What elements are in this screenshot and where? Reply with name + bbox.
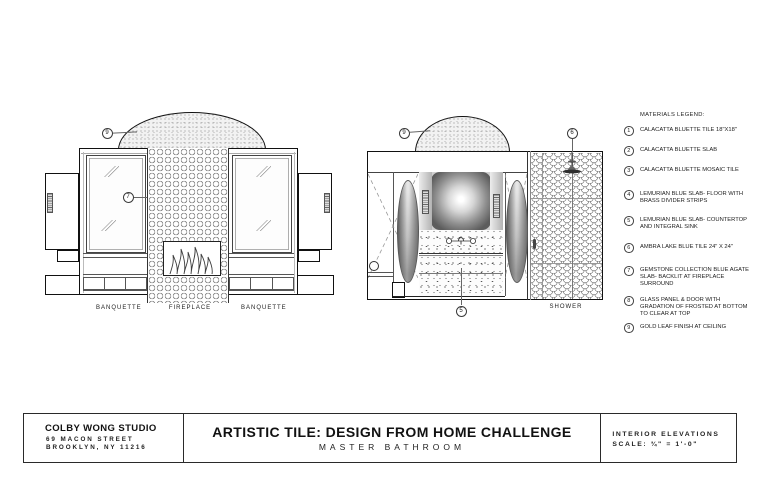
callout-7-fireplace-surround: 7	[123, 192, 134, 203]
fireplace-opening	[163, 241, 221, 276]
materials-legend: MATERIALS LEGEND: 1 CALACATTA BLUETTE TI…	[0, 0, 760, 360]
glass-column-left	[397, 180, 419, 283]
mosaic-fireplace-column	[147, 148, 229, 303]
callout-9-ceiling: 9	[399, 128, 410, 139]
leader-line	[461, 268, 462, 305]
studio-name: COLBY WONG STUDIO	[45, 423, 157, 434]
leader-line	[134, 197, 147, 198]
vanity-sconce-left	[422, 190, 429, 214]
callout-5-vanity: 5	[456, 306, 467, 317]
floor-line	[393, 296, 505, 297]
legend-number-badge: 2	[624, 146, 634, 156]
legend-item-7: 7 GEMSTONE COLLECTION BLUE AGATESLAB- BA…	[624, 267, 758, 288]
title-block: COLBY WONG STUDIO 69 MACON STREET BROOKL…	[23, 413, 737, 463]
vanity-sconce-right	[493, 194, 500, 218]
legend-number-badge: 9	[624, 323, 634, 333]
legend-number-badge: 6	[624, 243, 634, 253]
legend-number-badge: 3	[624, 166, 634, 176]
studio-address-line2: BROOKLYN, NY 11216	[46, 444, 147, 451]
counter-edge-line	[419, 255, 503, 256]
callout-9-ceiling: 9	[102, 128, 113, 139]
drawing-sheet: 9 7 BANQUETTE FIREPLACE BANQUETTE	[0, 0, 760, 492]
legend-title: MATERIALS LEGEND:	[640, 112, 705, 118]
legend-item-9: 9 GOLD LEAF FINISH AT CEILING	[624, 324, 758, 331]
legend-item-3: 3 CALACATTA BLUETTE MOSAIC TILE	[624, 167, 758, 174]
sheet-title: ARTISTIC TILE: DESIGN FROM HOME CHALLENG…	[184, 424, 601, 440]
legend-item-5: 5 LEMURIAN BLUE SLAB- COUNTERTOPAND INTE…	[624, 217, 758, 231]
sheet-subtitle: MASTER BATHROOM	[184, 442, 601, 452]
legend-number-badge: 4	[624, 190, 634, 200]
sheet-type: INTERIOR ELEVATIONS	[612, 431, 719, 438]
flames-icon	[164, 242, 220, 276]
legend-number-badge: 5	[624, 216, 634, 226]
legend-item-4: 4 LEMURIAN BLUE SLAB- FLOOR WITHBRASS DI…	[624, 191, 758, 205]
leader-line	[572, 139, 573, 152]
shower-head-icon	[560, 152, 584, 186]
door-pull-icon	[369, 261, 379, 271]
legend-number-badge: 1	[624, 126, 634, 136]
title-block-studio-cell: COLBY WONG STUDIO 69 MACON STREET BROOKL…	[24, 414, 184, 462]
legend-number-badge: 8	[624, 296, 634, 306]
studio-address-line1: 69 MACON STREET	[46, 436, 134, 443]
legend-item-6: 6 AMBRA LAKE BLUE TILE 24" X 24"	[624, 244, 758, 251]
backlit-mirror	[419, 172, 503, 230]
counter-edge-line	[419, 253, 503, 254]
legend-number-badge: 7	[624, 266, 634, 276]
legend-item-8: 8 GLASS PANEL & DOOR WITHGRADATION OF FR…	[624, 297, 758, 318]
faucet-icon	[444, 233, 478, 249]
glass-column-right	[506, 180, 528, 283]
title-block-title-cell: ARTISTIC TILE: DESIGN FROM HOME CHALLENG…	[184, 414, 602, 462]
legend-item-1: 1 CALACATTA BLUETTE TILE 18"X18"	[624, 127, 758, 134]
backlit-mirror-glow	[431, 172, 491, 230]
sheet-scale: SCALE: ¾" = 1'-0"	[612, 441, 698, 448]
callout-6-shower-tile: 6	[567, 128, 578, 139]
legend-item-2: 2 CALACATTA BLUETTE SLAB	[624, 147, 758, 154]
title-block-info-cell: INTERIOR ELEVATIONS SCALE: ¾" = 1'-0"	[601, 414, 736, 462]
